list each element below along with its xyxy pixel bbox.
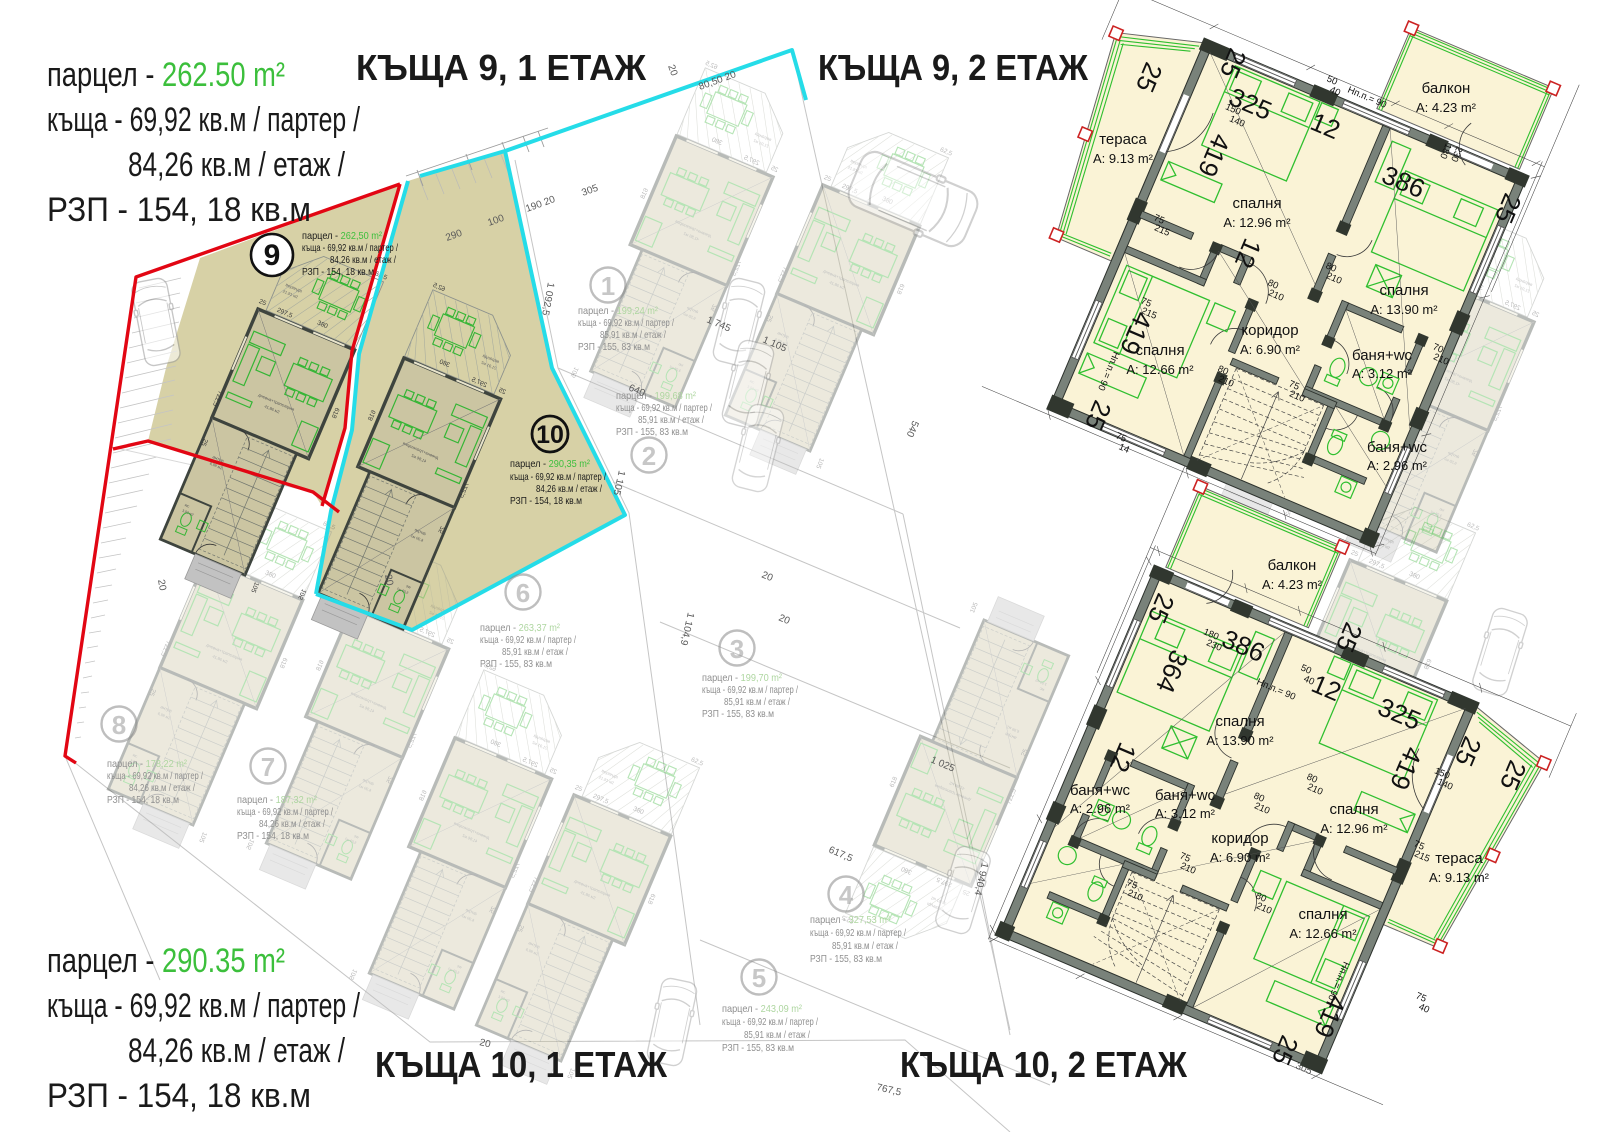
svg-text:2: 2 [642, 441, 656, 471]
svg-text:A: 4.23 m²: A: 4.23 m² [1262, 577, 1323, 592]
svg-text:спалня: спалня [1215, 713, 1264, 730]
svg-text:A: 2.96 m²: A: 2.96 m² [1070, 801, 1131, 816]
svg-text:КЪЩА 9, 2 ЕТАЖ: КЪЩА 9, 2 ЕТАЖ [818, 47, 1088, 88]
svg-text:РЗП - 154, 18 кв.м: РЗП - 154, 18 кв.м [47, 191, 311, 229]
svg-text:КЪЩА 9, 1 ЕТАЖ: КЪЩА 9, 1 ЕТАЖ [356, 47, 646, 88]
svg-text:A: 3.12 m²: A: 3.12 m² [1155, 806, 1216, 821]
svg-text:къща - 69,92 кв.м / партер /: къща - 69,92 кв.м / партер / [702, 684, 798, 696]
svg-text:РЗП - 154, 18 кв.м: РЗП - 154, 18 кв.м [510, 495, 582, 507]
svg-text:къща - 69,92 кв.м / партер /: къща - 69,92 кв.м / партер / [510, 471, 606, 483]
svg-text:РЗП - 155, 83 кв.м: РЗП - 155, 83 кв.м [480, 658, 552, 670]
svg-text:баня+wc: баня+wc [1070, 782, 1131, 799]
svg-text:РЗП - 154, 18 кв.м: РЗП - 154, 18 кв.м [302, 266, 374, 278]
svg-text:къща - 69,92 кв.м / партер /: къща - 69,92 кв.м / партер / [578, 317, 674, 329]
svg-text:A: 12.66 m²: A: 12.66 m² [1126, 362, 1194, 377]
svg-text:РЗП - 154, 18 кв.м: РЗП - 154, 18 кв.м [237, 830, 309, 842]
svg-text:къща - 69,92 кв.м / партер /: къща - 69,92 кв.м / партер / [47, 101, 360, 139]
svg-text:парцел - 243,09 m²: парцел - 243,09 m² [722, 1003, 802, 1015]
svg-text:спалня: спалня [1329, 801, 1378, 818]
svg-text:84,26 кв.м / етаж /: 84,26 кв.м / етаж / [128, 1032, 345, 1070]
svg-text:9: 9 [264, 239, 281, 272]
svg-text:парцел - 187,32 m²: парцел - 187,32 m² [237, 794, 317, 806]
svg-text:РЗП - 154, 18 кв.м: РЗП - 154, 18 кв.м [47, 1077, 311, 1115]
svg-text:84,26 кв.м / етаж /: 84,26 кв.м / етаж / [129, 782, 195, 794]
svg-text:РЗП - 154, 18 кв.м: РЗП - 154, 18 кв.м [107, 794, 179, 806]
svg-text:РЗП - 155, 83 кв.м: РЗП - 155, 83 кв.м [722, 1042, 794, 1054]
svg-text:84,26 кв.м / етаж /: 84,26 кв.м / етаж / [536, 483, 602, 495]
svg-text:РЗП - 155, 83 кв.м: РЗП - 155, 83 кв.м [810, 953, 882, 965]
svg-text:КЪЩА 10, 2 ЕТАЖ: КЪЩА 10, 2 ЕТАЖ [900, 1044, 1187, 1085]
svg-text:A: 3.12 m²: A: 3.12 m² [1352, 366, 1413, 381]
svg-text:A: 6.90 m²: A: 6.90 m² [1240, 342, 1301, 357]
svg-text:5: 5 [752, 963, 766, 993]
svg-text:A: 2.96 m²: A: 2.96 m² [1367, 458, 1428, 473]
svg-text:спалня: спалня [1298, 906, 1347, 923]
svg-text:84,26 кв.м / етаж /: 84,26 кв.м / етаж / [330, 254, 396, 266]
svg-text:парцел - 263,37 m²: парцел - 263,37 m² [480, 622, 560, 634]
svg-text:A: 6.90 m²: A: 6.90 m² [1210, 850, 1271, 865]
svg-text:85,91 кв.м / етаж /: 85,91 кв.м / етаж / [502, 646, 568, 658]
svg-text:парцел - 199,24 m²: парцел - 199,24 m² [578, 305, 658, 317]
svg-text:къща - 69,92 кв.м / партер /: къща - 69,92 кв.м / партер / [302, 242, 398, 254]
svg-text:къща - 69,92 кв.м / партер /: къща - 69,92 кв.м / партер / [810, 927, 906, 939]
svg-text:1: 1 [601, 271, 615, 301]
svg-text:къща - 69,92 кв.м / партер /: къща - 69,92 кв.м / партер / [480, 634, 576, 646]
svg-text:къща - 69,92 кв.м / партер /: къща - 69,92 кв.м / партер / [237, 806, 333, 818]
svg-text:КЪЩА 10, 1 ЕТАЖ: КЪЩА 10, 1 ЕТАЖ [375, 1044, 667, 1085]
svg-text:спалня: спалня [1379, 282, 1428, 299]
svg-text:8: 8 [112, 710, 126, 740]
svg-text:7: 7 [261, 752, 275, 782]
svg-text:коридор: коридор [1211, 830, 1268, 847]
svg-text:парцел - 262,50 m²: парцел - 262,50 m² [302, 230, 382, 242]
svg-text:РЗП - 155, 83 кв.м: РЗП - 155, 83 кв.м [616, 426, 688, 438]
svg-text:85,91 кв.м / етаж /: 85,91 кв.м / етаж / [832, 940, 898, 952]
svg-text:парцел - 290,35 m²: парцел - 290,35 m² [510, 458, 590, 470]
svg-text:РЗП - 155, 83 кв.м: РЗП - 155, 83 кв.м [578, 341, 650, 353]
svg-text:85,91 кв.м / етаж /: 85,91 кв.м / етаж / [600, 329, 666, 341]
svg-text:баня+wc: баня+wc [1352, 347, 1413, 364]
svg-text:парцел - 290.35 m²: парцел - 290.35 m² [47, 942, 285, 980]
svg-text:РЗП - 155, 83 кв.м: РЗП - 155, 83 кв.м [702, 708, 774, 720]
svg-text:парцел - 262.50 m²: парцел - 262.50 m² [47, 56, 285, 94]
svg-text:балкон: балкон [1422, 80, 1471, 97]
svg-text:къща - 69,92 кв.м / партер /: къща - 69,92 кв.м / партер / [722, 1016, 818, 1028]
svg-text:A: 9.13 m²: A: 9.13 m² [1429, 870, 1490, 885]
svg-text:4: 4 [839, 880, 854, 910]
svg-text:къща - 69,92 кв.м / партер /: къща - 69,92 кв.м / партер / [107, 770, 203, 782]
svg-text:A: 4.23 m²: A: 4.23 m² [1416, 100, 1477, 115]
svg-text:84,26 кв.м / етаж /: 84,26 кв.м / етаж / [128, 146, 345, 184]
svg-text:балкон: балкон [1268, 557, 1317, 574]
svg-text:парцел - 178,22 m²: парцел - 178,22 m² [107, 758, 187, 770]
svg-text:A: 12.66 m²: A: 12.66 m² [1289, 926, 1357, 941]
svg-text:баня+wc: баня+wc [1155, 787, 1216, 804]
svg-text:парцел - 327,53 m²: парцел - 327,53 m² [810, 914, 890, 926]
svg-text:A: 13.90 m²: A: 13.90 m² [1206, 733, 1274, 748]
svg-text:6: 6 [516, 578, 530, 608]
svg-text:тераса: тераса [1099, 131, 1147, 148]
svg-text:10: 10 [536, 421, 564, 449]
svg-text:баня+wc: баня+wc [1367, 439, 1428, 456]
svg-text:A: 13.90 m²: A: 13.90 m² [1370, 302, 1438, 317]
svg-text:85,91 кв.м / етаж /: 85,91 кв.м / етаж / [744, 1029, 810, 1041]
svg-text:A: 9.13 m²: A: 9.13 m² [1093, 151, 1154, 166]
svg-text:къща - 69,92 кв.м / партер /: къща - 69,92 кв.м / партер / [47, 987, 360, 1025]
svg-text:85,91 кв.м / етаж /: 85,91 кв.м / етаж / [638, 414, 704, 426]
svg-text:A: 12.96 m²: A: 12.96 m² [1320, 821, 1388, 836]
svg-text:тераса: тераса [1435, 850, 1483, 867]
svg-text:спалня: спалня [1232, 195, 1281, 212]
svg-text:84,26 кв.м / етаж /: 84,26 кв.м / етаж / [259, 818, 325, 830]
svg-text:3: 3 [730, 634, 744, 664]
svg-text:къща - 69,92 кв.м / партер /: къща - 69,92 кв.м / партер / [616, 402, 712, 414]
svg-text:A: 12.96 m²: A: 12.96 m² [1223, 215, 1291, 230]
svg-text:85,91 кв.м / етаж /: 85,91 кв.м / етаж / [724, 696, 790, 708]
svg-text:парцел - 199,70 m²: парцел - 199,70 m² [702, 672, 782, 684]
svg-text:коридор: коридор [1241, 322, 1298, 339]
